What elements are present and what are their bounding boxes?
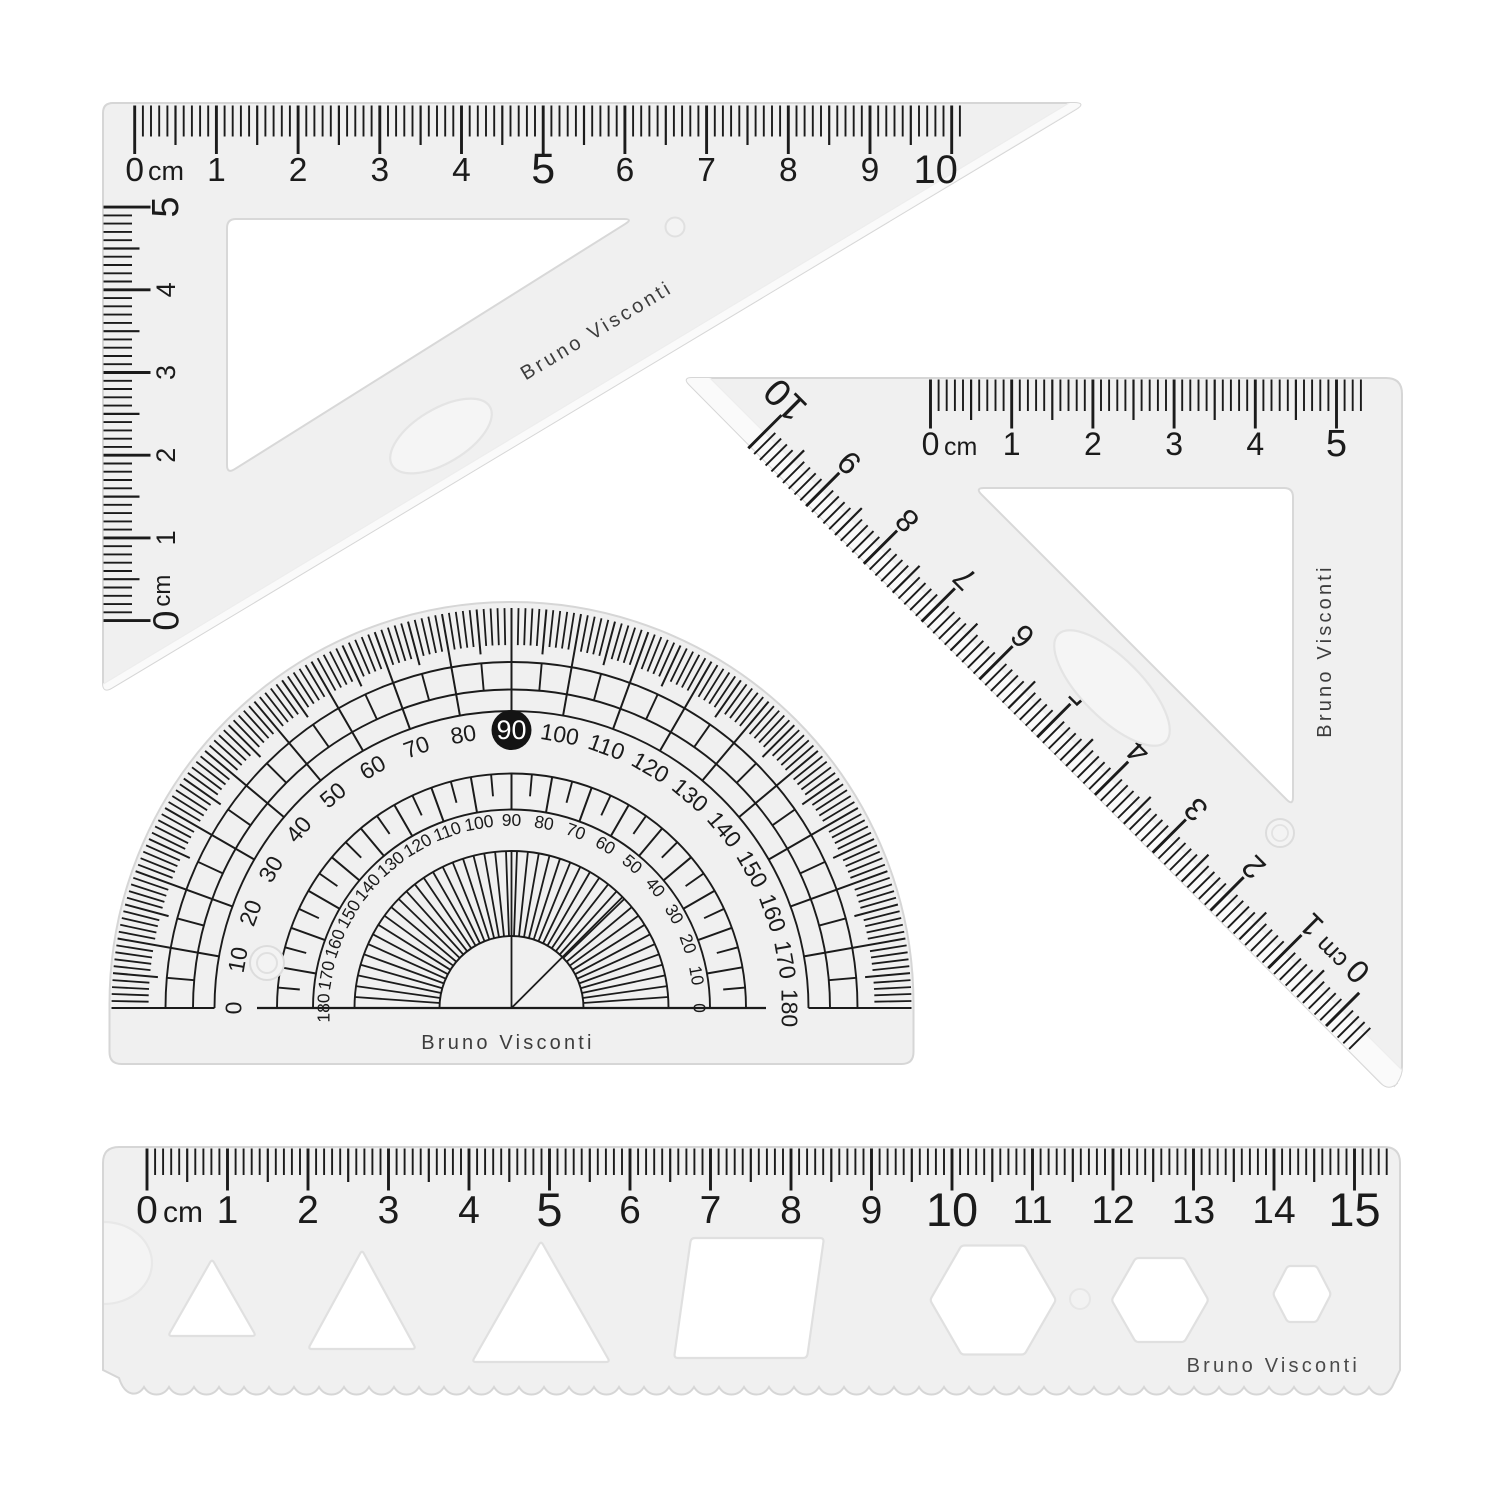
svg-text:9: 9 bbox=[861, 152, 880, 189]
svg-text:3: 3 bbox=[151, 365, 181, 380]
svg-text:8: 8 bbox=[779, 152, 798, 189]
svg-text:0: 0 bbox=[922, 426, 940, 462]
svg-text:2: 2 bbox=[1084, 426, 1102, 462]
svg-text:0: 0 bbox=[221, 1002, 247, 1015]
svg-text:0: 0 bbox=[125, 152, 144, 189]
svg-text:4: 4 bbox=[151, 282, 181, 297]
svg-text:6: 6 bbox=[619, 1189, 641, 1232]
svg-text:15: 15 bbox=[1328, 1183, 1380, 1236]
svg-text:cm: cm bbox=[944, 433, 977, 461]
svg-text:0: 0 bbox=[146, 611, 187, 631]
svg-text:2: 2 bbox=[297, 1189, 319, 1232]
svg-text:1: 1 bbox=[1003, 426, 1021, 462]
svg-text:90: 90 bbox=[502, 810, 522, 830]
svg-text:10: 10 bbox=[223, 945, 253, 975]
svg-text:cm: cm bbox=[149, 575, 176, 607]
svg-text:11: 11 bbox=[1012, 1189, 1053, 1232]
svg-text:Bruno Visconti: Bruno Visconti bbox=[1314, 564, 1336, 737]
svg-text:12: 12 bbox=[1091, 1189, 1134, 1232]
svg-text:4: 4 bbox=[1246, 426, 1264, 462]
svg-text:5: 5 bbox=[531, 145, 555, 193]
svg-text:3: 3 bbox=[370, 152, 389, 189]
svg-text:5: 5 bbox=[536, 1183, 562, 1236]
svg-text:Bruno Visconti: Bruno Visconti bbox=[1187, 1355, 1360, 1377]
svg-text:180: 180 bbox=[777, 989, 803, 1027]
svg-text:7: 7 bbox=[697, 152, 716, 189]
svg-text:8: 8 bbox=[780, 1189, 802, 1232]
svg-text:3: 3 bbox=[1165, 426, 1183, 462]
svg-text:6: 6 bbox=[616, 152, 635, 189]
svg-text:10: 10 bbox=[913, 148, 958, 192]
svg-text:10: 10 bbox=[926, 1183, 978, 1236]
svg-text:cm: cm bbox=[148, 156, 184, 186]
svg-text:3: 3 bbox=[378, 1189, 400, 1232]
svg-text:7: 7 bbox=[700, 1189, 722, 1232]
svg-text:1: 1 bbox=[151, 530, 181, 545]
svg-text:14: 14 bbox=[1252, 1189, 1295, 1232]
svg-text:2: 2 bbox=[151, 448, 181, 463]
svg-text:80: 80 bbox=[448, 719, 478, 749]
svg-text:90: 90 bbox=[496, 715, 526, 745]
svg-text:Bruno Visconti: Bruno Visconti bbox=[421, 1032, 594, 1054]
svg-text:4: 4 bbox=[452, 152, 471, 189]
svg-text:13: 13 bbox=[1172, 1189, 1215, 1232]
svg-text:0: 0 bbox=[136, 1189, 158, 1232]
svg-text:10: 10 bbox=[685, 964, 708, 987]
svg-text:cm: cm bbox=[163, 1196, 203, 1229]
svg-text:5: 5 bbox=[145, 197, 187, 218]
svg-text:4: 4 bbox=[458, 1189, 480, 1232]
svg-text:5: 5 bbox=[1326, 423, 1347, 465]
svg-text:2: 2 bbox=[289, 152, 308, 189]
svg-text:9: 9 bbox=[861, 1189, 883, 1232]
svg-text:1: 1 bbox=[207, 152, 226, 189]
svg-text:1: 1 bbox=[217, 1189, 239, 1232]
svg-text:80: 80 bbox=[533, 811, 556, 834]
